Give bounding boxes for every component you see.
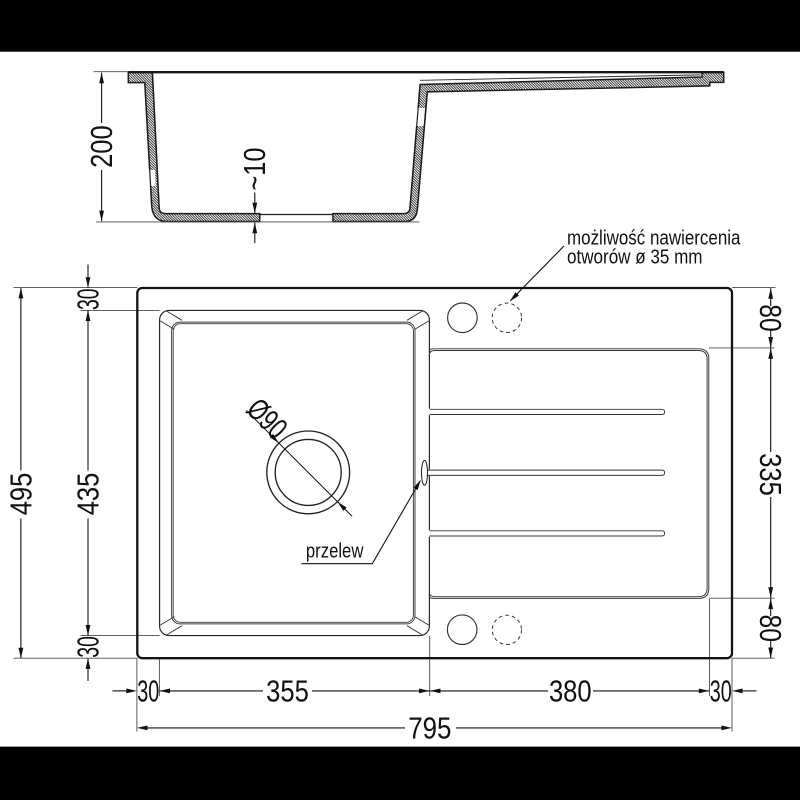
svg-text:~10: ~10 [238,148,272,191]
svg-text:30: 30 [72,288,106,310]
svg-text:495: 495 [5,473,39,516]
svg-text:435: 435 [72,473,106,516]
svg-text:80: 80 [753,614,787,642]
svg-text:80: 80 [753,304,787,332]
svg-text:200: 200 [85,125,119,168]
svg-text:30: 30 [710,675,732,709]
svg-text:380: 380 [549,675,592,709]
svg-text:335: 335 [753,453,787,496]
svg-text:355: 355 [266,675,309,709]
svg-text:30: 30 [72,636,106,658]
svg-text:przelew: przelew [306,540,364,562]
svg-text:otworów ø 35 mm: otworów ø 35 mm [567,246,703,268]
svg-text:30: 30 [137,675,159,709]
svg-text:795: 795 [408,712,451,746]
